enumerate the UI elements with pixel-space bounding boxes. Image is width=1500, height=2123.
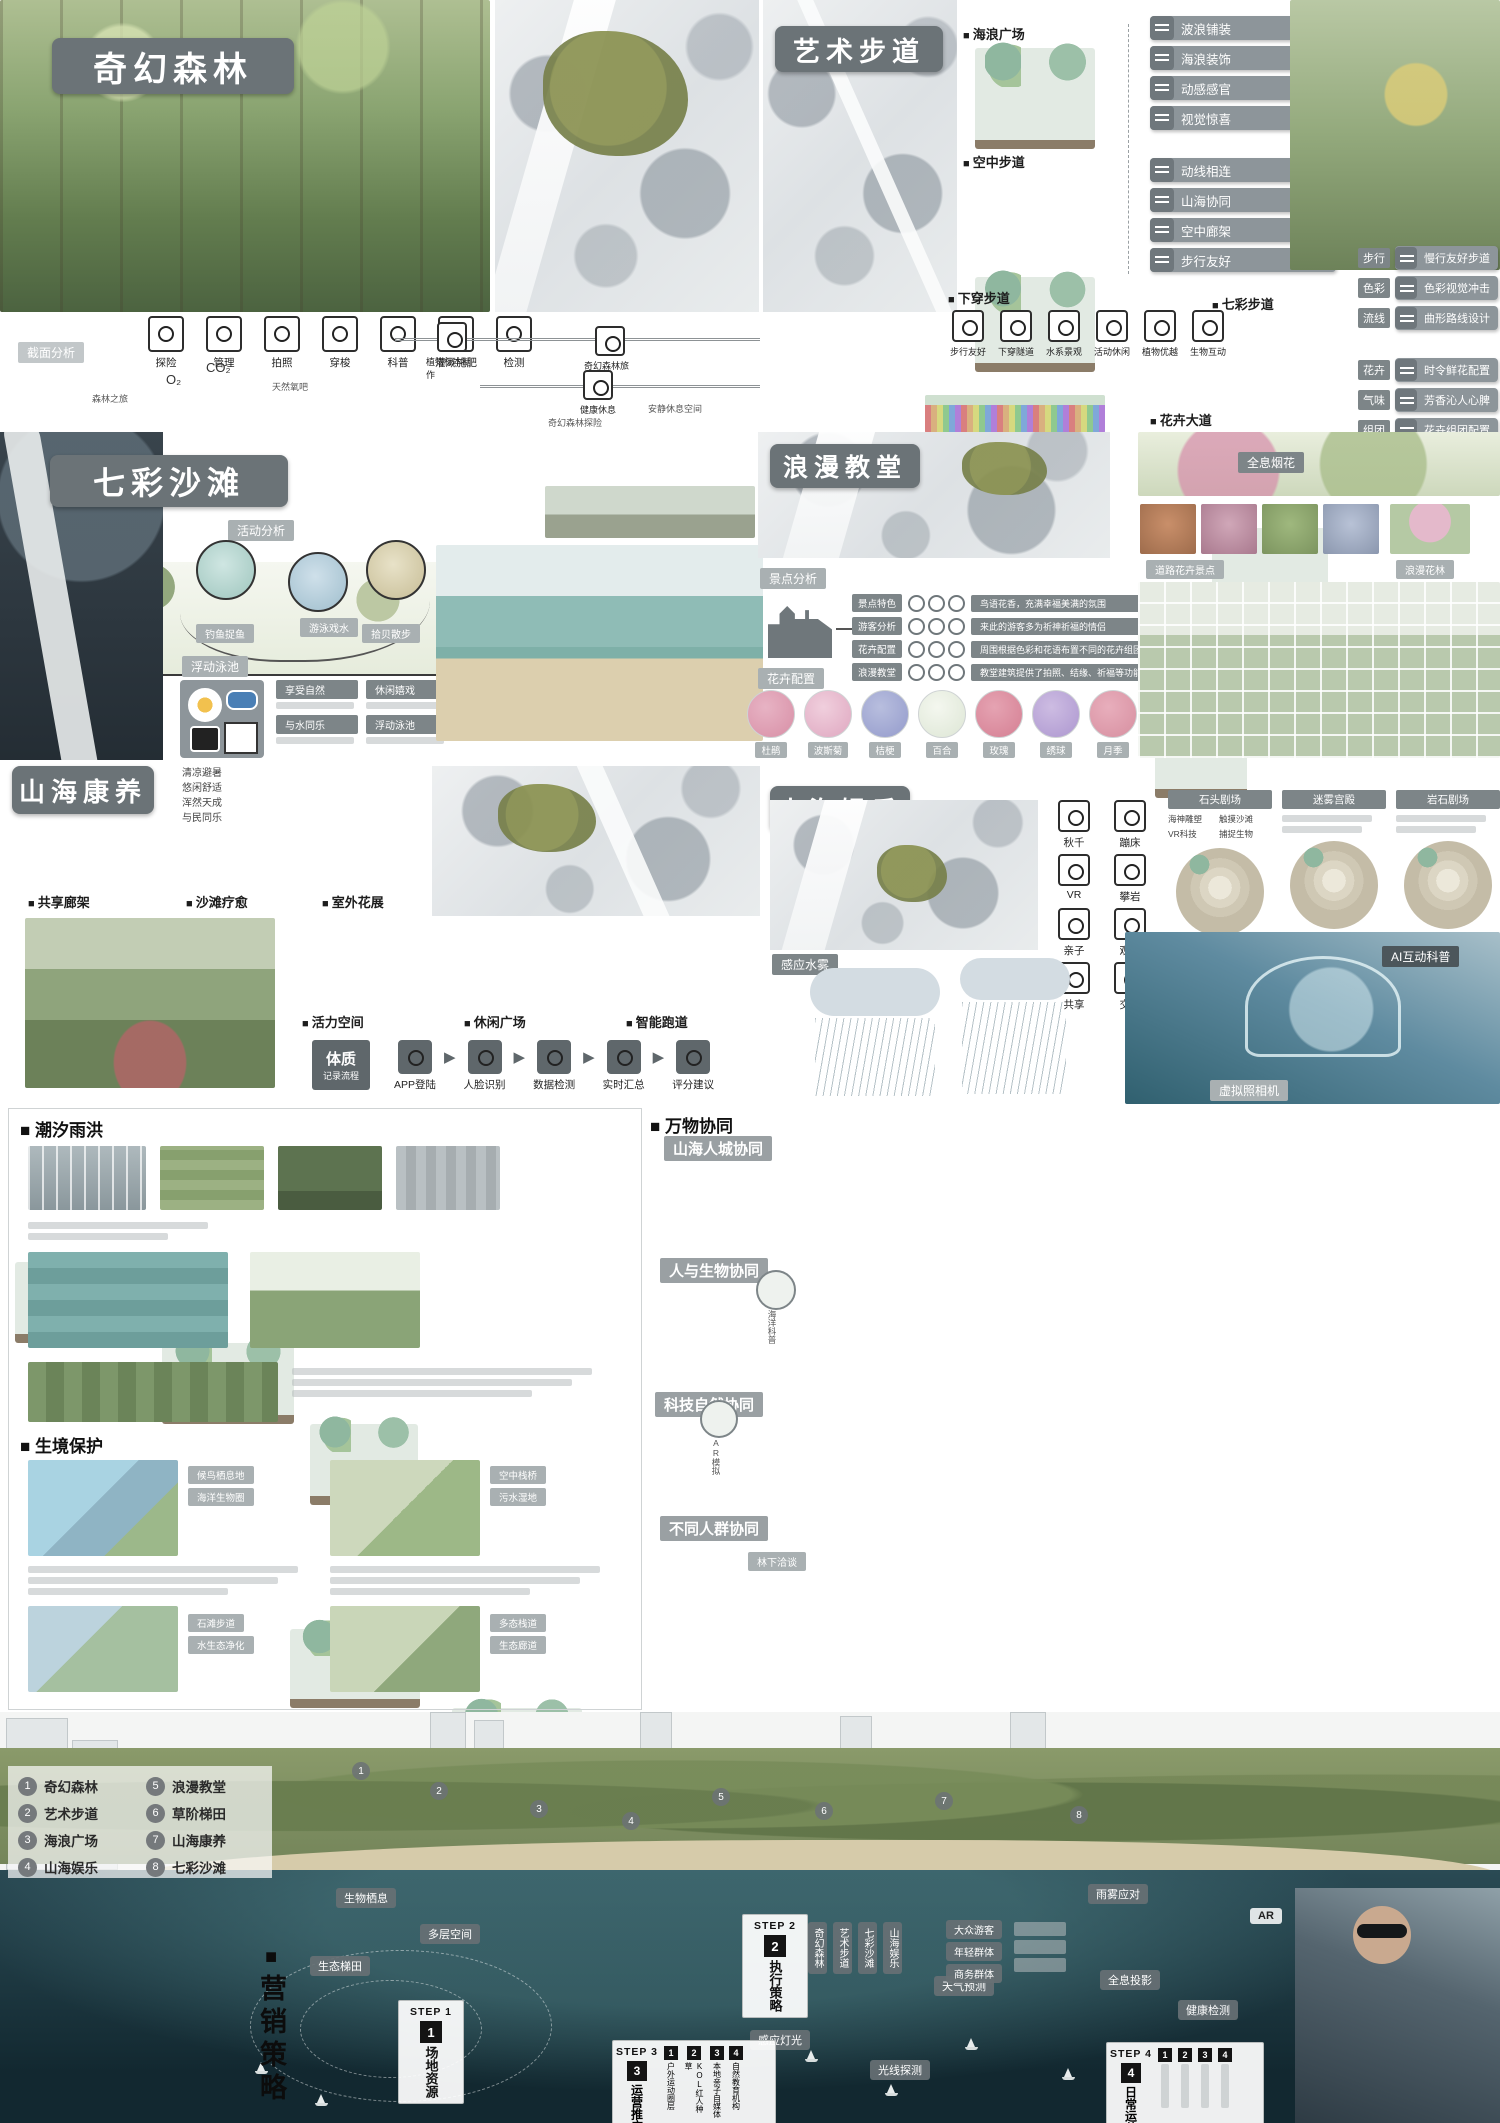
pool-tag-col-1: 享受自然 与水同乐 xyxy=(276,680,358,748)
hydrangea-photo xyxy=(1032,690,1080,738)
note-oxygen-bar: 天然氧吧 xyxy=(272,380,308,393)
activity-circle-fishing xyxy=(196,540,256,600)
data-check-icon: 数据检测 xyxy=(525,1040,583,1092)
synergy-sub-1: 山海人城协同 xyxy=(664,1136,772,1161)
visual-surprise-icon xyxy=(1150,106,1174,130)
route-link-icon xyxy=(1150,158,1174,182)
step4-items: 1 2 3 4 xyxy=(1158,2048,1232,2112)
mist-cloud-2 xyxy=(960,958,1070,1000)
explore-icon: 探险 xyxy=(140,316,192,370)
step2-card: STEP 2 2 执行策略 xyxy=(742,1914,808,2018)
walker-icon xyxy=(1395,247,1417,269)
china-rose-photo xyxy=(1089,690,1137,738)
presentation-board: 奇幻森林 艺术步道 海浪广场 空中步道 波浪铺装 海浪装饰 动感感官 视觉惊喜 … xyxy=(0,0,1500,2123)
tag-health-check: 健康检测 xyxy=(1178,2000,1238,2020)
stage-col-stone: 石头剧场 海神雕塑触摸沙滩 VR科技捕捉生物 xyxy=(1168,790,1272,936)
church-icon xyxy=(768,606,832,658)
app-login-icon: APP登陆 xyxy=(386,1040,444,1092)
family-icon: 亲子 xyxy=(1048,908,1100,958)
flower-config-label: 花卉配置 xyxy=(758,668,824,689)
mountain-sea-icon xyxy=(1150,188,1174,212)
habitat-iso-b xyxy=(330,1460,480,1556)
section-title-chapel: 浪漫教堂 xyxy=(770,444,920,488)
sunglasses xyxy=(1357,1924,1407,1938)
plan-badge-7: 7 xyxy=(935,1792,953,1810)
azalea-photo xyxy=(747,690,795,738)
habitat-iso-c xyxy=(28,1606,178,1692)
climb-icon: 攀岩 xyxy=(1104,854,1156,904)
legend-item: 6草阶梯田 xyxy=(146,1803,264,1823)
section-title-habitat: 生境保护 xyxy=(20,1432,103,1457)
lily-photo xyxy=(918,690,966,738)
habitat-chip-corridor: 生态廊道 xyxy=(490,1636,546,1654)
swing-icon: 秋千 xyxy=(1048,800,1100,850)
callout-circle xyxy=(756,1270,796,1310)
fitness-flow: APP登陆 ▶ 人脸识别 ▶ 数据检测 ▶ 实时汇总 ▶ 评分建议 xyxy=(386,1040,722,1092)
camera-icon: 拍照 xyxy=(256,316,308,370)
cosmos-photo xyxy=(804,690,852,738)
trampoline-icon: 蹦床 xyxy=(1104,800,1156,850)
section-title-synergy: 万物协同 xyxy=(650,1112,733,1137)
habitat-chip-stone-path: 石滩步道 xyxy=(188,1614,244,1632)
habitat-iso-d xyxy=(330,1606,480,1692)
plan-badge-6: 6 xyxy=(815,1802,833,1820)
swim-label: 游泳戏水 xyxy=(300,618,358,637)
flower-field-photo xyxy=(1138,432,1500,496)
fun-plan xyxy=(770,800,1038,950)
synergy-sub-4: 不同人群协同 xyxy=(660,1516,768,1541)
label-rainbow-path: 七彩步道 xyxy=(1212,294,1274,313)
flood-para-blur xyxy=(292,1368,592,1401)
audience-blur xyxy=(1014,1922,1066,1976)
habitat-chip-boardwalk: 多态栈道 xyxy=(490,1614,546,1632)
walk-friendly-icon: 步行友好 xyxy=(945,310,991,358)
row: 步行慢行友好步道 xyxy=(1358,246,1500,270)
habitat-chip-bird: 候鸟栖息地 xyxy=(188,1466,254,1484)
plan-badge-5: 5 xyxy=(712,1788,730,1806)
label-underpass: 下穿步道 xyxy=(948,288,1010,307)
legend-item: 2艺术步道 xyxy=(18,1803,136,1823)
plan-badge-3: 3 xyxy=(530,1800,548,1818)
masterplan-crop-1 xyxy=(495,0,759,312)
section-title-wellness: 山海康养 xyxy=(12,766,154,814)
step3-card: STEP 3 3 运营推广 1户外运动圈层 2KOL红人种草 3本地亲子自媒体 … xyxy=(612,2040,776,2123)
score-advice-icon: 评分建议 xyxy=(664,1040,722,1092)
stage-col-mist: 迷雾宫殿 xyxy=(1282,790,1386,929)
legend-item: 3海浪广场 xyxy=(18,1830,136,1850)
wellness-park-photo xyxy=(25,918,275,1088)
tag-ray-detect: 光线探测 xyxy=(870,2060,930,2080)
habitat-para-blur-1 xyxy=(28,1566,298,1599)
ar-person-photo xyxy=(1295,1888,1500,2123)
beach-activity-label: 活动分析 xyxy=(228,520,294,541)
o2-label: O₂ xyxy=(166,372,181,387)
rest-node: 健康休息 xyxy=(572,370,624,416)
activity-circle-shell xyxy=(366,540,426,600)
stage-iso xyxy=(1404,841,1492,929)
label-leisure-plaza: 休闲广场 xyxy=(464,1012,526,1031)
connector xyxy=(836,628,852,630)
label-smart-track: 智能跑道 xyxy=(626,1012,688,1031)
rain-lines xyxy=(962,1002,1066,1094)
vr-icon: VR xyxy=(1048,854,1100,904)
leisure-icon: 活动休闲 xyxy=(1089,310,1135,358)
curve-icon xyxy=(1395,307,1417,329)
chat-under-trees-label: 林下洽谈 xyxy=(748,1552,806,1571)
flood-terrace-section xyxy=(28,1252,228,1348)
science-icon: 科普 xyxy=(372,316,424,370)
realtime-report-icon: 实时汇总 xyxy=(595,1040,653,1092)
pool-feel-list: 清凉避暑悠闲舒适浑然天成与民同乐 xyxy=(182,766,222,826)
legend-item: 5浪漫教堂 xyxy=(146,1776,264,1796)
section-title-flood: 潮汐雨洪 xyxy=(20,1116,103,1141)
audience-tags: 大众游客 年轻群体 商务群体 xyxy=(946,1920,1002,1983)
plan-badge-2: 2 xyxy=(430,1782,448,1800)
activity-circle-swim xyxy=(288,552,348,612)
tag-rain-fog: 雨雾应对 xyxy=(1088,1884,1148,1904)
flood-roof-tiles xyxy=(28,1146,500,1210)
divider xyxy=(1128,24,1129,274)
habitat-iso-a xyxy=(28,1460,178,1556)
label-outdoor-flower: 室外花展 xyxy=(322,892,384,911)
greenhouse-render xyxy=(1138,582,1500,758)
wave-decor-icon xyxy=(1150,46,1174,70)
flood-caption-blur xyxy=(28,1222,208,1244)
beach-photo xyxy=(436,545,763,741)
tag-eco-terrace: 生态梯田 xyxy=(310,1956,370,1976)
marketing-title: ■营销策略 xyxy=(252,1946,291,2106)
note-forest-adventure: 奇幻森林探险 xyxy=(548,416,602,429)
label-vitality-space: 活力空间 xyxy=(302,1012,364,1031)
label-flower-avenue: 花卉大道 xyxy=(1150,410,1212,429)
water-scene-icon: 水系景观 xyxy=(1041,310,1087,358)
step2-sites: 奇幻森林 艺术步道 七彩沙滩 山海娱乐 xyxy=(808,1922,902,1974)
row: 花卉时令鲜花配置 xyxy=(1358,358,1500,382)
tag-ar: AR xyxy=(1250,1908,1282,1924)
callout-ocean-science: 海洋科普 xyxy=(766,1310,778,1344)
walk-icon: 穿梭 xyxy=(314,316,366,370)
virtual-camera-label: 虚拟照相机 xyxy=(1210,1080,1288,1101)
tag-bio-habitat: 生物栖息 xyxy=(336,1888,396,1908)
legend-card: 1奇幻森林 2艺术步道 3海浪广场 4山海娱乐 5浪漫教堂 6草阶梯田 7山海康… xyxy=(8,1766,272,1878)
plan-badge-8: 8 xyxy=(1070,1806,1088,1824)
step4-card: STEP 4 4 日常运营 1 2 3 4 xyxy=(1106,2042,1264,2123)
step1-card: STEP 1 1 场地资源 xyxy=(398,2000,464,2104)
note-quiet-space: 安静休息空间 xyxy=(648,402,702,415)
section-title-forest: 奇幻森林 xyxy=(52,38,294,94)
wellness-plan xyxy=(432,766,760,916)
flower-circles: 杜鹃 波斯菊 桔梗 百合 玫瑰 绣球 月季 xyxy=(747,690,1137,758)
note-forest-trip: 森林之旅 xyxy=(92,392,128,405)
plan-badge-1: 1 xyxy=(352,1762,370,1780)
flower-icon xyxy=(1395,359,1417,381)
step3-channels: 1户外运动圈层 2KOL红人种草 3本地亲子自媒体 4自然教育机构 xyxy=(664,2046,743,2120)
label-sky-walk: 空中步道 xyxy=(963,152,1025,171)
holo-firework-label: 全息烟花 xyxy=(1238,452,1304,473)
section-title-artwalk: 艺术步道 xyxy=(775,26,943,72)
rose-photo xyxy=(975,690,1023,738)
fishing-label: 钓鱼捉鱼 xyxy=(196,624,254,643)
co2-label: CO₂ xyxy=(206,360,231,375)
section-analysis-label: 截面分析 xyxy=(18,342,84,363)
habitat-chip-marine: 海洋生物圈 xyxy=(188,1488,254,1506)
pool-sticker-board xyxy=(180,680,264,758)
rain-lines xyxy=(815,1018,935,1096)
row: 气味芳香沁人心脾 xyxy=(1358,388,1500,412)
forest-activity-icons: 探险 管理 拍照 穿梭 科普 灌溉施肥 检测 xyxy=(140,316,540,370)
specimen-node: 植物标本制作 xyxy=(426,322,478,381)
habitat-chip-purify: 水生态净化 xyxy=(188,1636,254,1654)
chapel-analysis-rows: 景点特色 鸟语花香，充满幸福美满的氛围 游客分析 来此的游客多为祈神祈福的情侣 … xyxy=(852,594,1165,681)
ai-science-label: AI互动科普 xyxy=(1382,946,1459,967)
callout-ar-sim: AR模拟 xyxy=(710,1438,722,1475)
walk-friendly-icon xyxy=(1150,248,1174,272)
wave-paving-icon xyxy=(1150,16,1174,40)
plan-badge-4: 4 xyxy=(622,1812,640,1830)
palette-icon xyxy=(1395,277,1417,299)
stage-col-rock: 岩石剧场 xyxy=(1396,790,1500,929)
mist-cloud-1 xyxy=(810,968,940,1016)
iso-wave-plaza xyxy=(975,48,1095,149)
callout-circle xyxy=(700,1400,738,1438)
road-flower-label: 道路花卉景点 xyxy=(1146,560,1224,579)
flood-green-section xyxy=(250,1252,420,1348)
pool-label: 浮动泳池 xyxy=(182,656,248,677)
bio-interact-icon: 生物互动 xyxy=(1185,310,1231,358)
row: 流线曲形路线设计 xyxy=(1358,306,1500,330)
scent-icon xyxy=(1395,389,1417,411)
stage-iso xyxy=(1176,848,1264,936)
legend-item: 4山海娱乐 xyxy=(18,1857,136,1877)
motion-sense-icon xyxy=(1150,76,1174,100)
pavilion-render-photo xyxy=(1290,0,1500,270)
label-shared-gallery: 共享廊架 xyxy=(28,892,90,911)
platycodon-photo xyxy=(861,690,909,738)
stage-iso xyxy=(1290,841,1378,929)
shell-label: 拾贝散步 xyxy=(362,624,420,643)
green-patch xyxy=(543,31,688,156)
plants-icon: 植物优越 xyxy=(1137,310,1183,358)
road-flower-tiles xyxy=(1140,504,1379,554)
flood-terrace-iso xyxy=(28,1362,278,1422)
legend-item: 7山海康养 xyxy=(146,1830,264,1850)
detect-icon: 检测 xyxy=(488,316,540,370)
tunnel-icon: 下穿隧道 xyxy=(993,310,1039,358)
walk-color-route-rows: 步行慢行友好步道 色彩色彩视觉冲击 流线曲形路线设计 xyxy=(1358,246,1500,336)
legend-item: 1奇幻森林 xyxy=(18,1776,136,1796)
label-beach-therapy: 沙滩疗愈 xyxy=(186,892,248,911)
romantic-grove-label: 浪漫花林 xyxy=(1396,560,1454,579)
habitat-para-blur-2 xyxy=(330,1566,600,1599)
romantic-grove-photo xyxy=(1390,504,1470,554)
section-title-beach: 七彩沙滩 xyxy=(50,455,288,507)
synergy-sub-2: 人与生物协同 xyxy=(660,1258,768,1283)
legend-item: 8七彩沙滩 xyxy=(146,1857,264,1877)
fitness-record-label: 体质 记录流程 xyxy=(312,1040,370,1090)
chapel-wall-photo xyxy=(545,486,755,538)
tag-hologram: 全息投影 xyxy=(1100,1970,1160,1990)
face-id-icon: 人脸识别 xyxy=(456,1040,514,1092)
row: 色彩色彩视觉冲击 xyxy=(1358,276,1500,300)
tag-multi-space: 多层空间 xyxy=(420,1924,480,1944)
underpass-icons: 步行友好 下穿隧道 水系景观 活动休闲 植物优越 生物互动 xyxy=(945,310,1231,358)
rainbow-fence-photo xyxy=(925,395,1105,433)
habitat-chip-skybridge: 空中栈桥 xyxy=(490,1466,546,1484)
habitat-chip-wetland: 污水湿地 xyxy=(490,1488,546,1506)
chapel-analysis-label: 景点分析 xyxy=(760,568,826,589)
aerial-gallery-icon xyxy=(1150,218,1174,242)
